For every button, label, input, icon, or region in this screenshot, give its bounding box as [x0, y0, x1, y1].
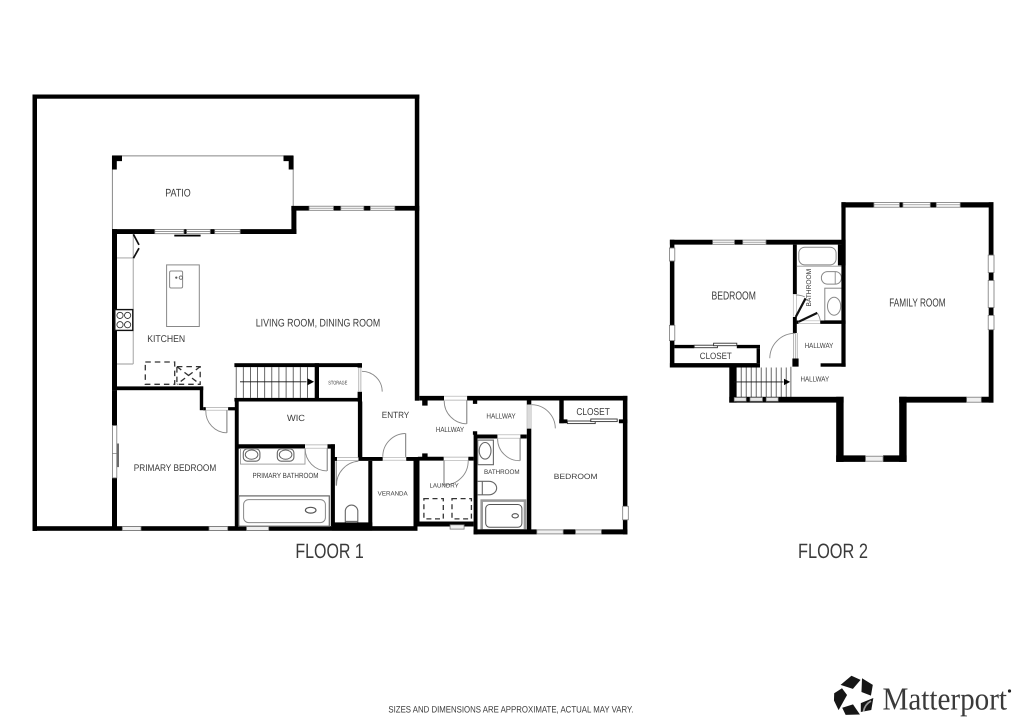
svg-text:PRIMARY BEDROOM: PRIMARY BEDROOM: [134, 463, 217, 474]
svg-text:LIVING ROOM, DINING ROOM: LIVING ROOM, DINING ROOM: [256, 317, 381, 329]
svg-text:LAUNDRY: LAUNDRY: [430, 483, 459, 490]
svg-text:HALLWAY: HALLWAY: [436, 425, 464, 434]
svg-text:CLOSET: CLOSET: [700, 351, 732, 361]
svg-text:BEDROOM: BEDROOM: [712, 289, 756, 302]
svg-text:WIC: WIC: [287, 413, 306, 423]
svg-text:FAMILY ROOM: FAMILY ROOM: [889, 296, 945, 309]
svg-text:KITCHEN: KITCHEN: [147, 334, 185, 345]
svg-text:SIZES AND DIMENSIONS ARE APPRO: SIZES AND DIMENSIONS ARE APPROXIMATE, AC…: [388, 704, 633, 714]
svg-text:BEDROOM: BEDROOM: [554, 472, 598, 481]
svg-text:ENTRY: ENTRY: [382, 410, 410, 420]
svg-text:STORAGE: STORAGE: [328, 380, 347, 386]
svg-text:HALLWAY: HALLWAY: [805, 341, 834, 350]
svg-text:VERANDA: VERANDA: [378, 490, 409, 497]
svg-text:PRIMARY BATHROOM: PRIMARY BATHROOM: [253, 471, 319, 480]
svg-text:HALLWAY: HALLWAY: [486, 411, 515, 420]
svg-text:FLOOR 1: FLOOR 1: [295, 540, 364, 563]
svg-text:HALLWAY: HALLWAY: [801, 374, 830, 383]
svg-text:BATHROOM: BATHROOM: [806, 269, 813, 307]
svg-text:FLOOR 2: FLOOR 2: [798, 540, 868, 563]
svg-text:PATIO: PATIO: [165, 188, 191, 200]
svg-text:CLOSET: CLOSET: [576, 407, 610, 418]
svg-text:Matterport: Matterport: [883, 681, 1008, 717]
svg-text:BATHROOM: BATHROOM: [484, 469, 520, 476]
